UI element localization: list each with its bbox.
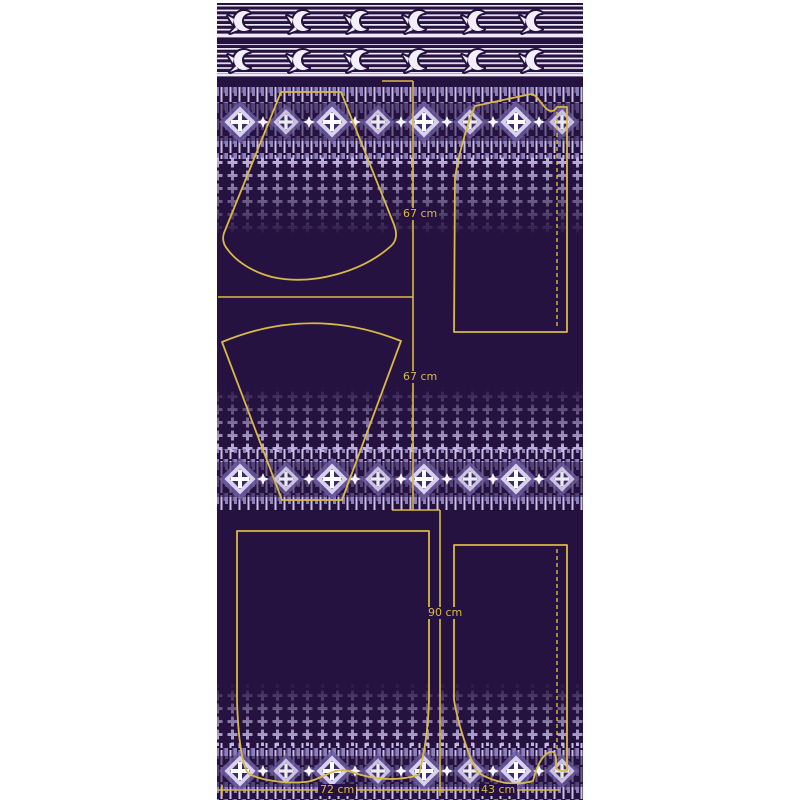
- ornament-band-top: [217, 87, 583, 234]
- plus-texture-fade: [217, 684, 583, 746]
- plus-texture-fade: [217, 156, 583, 234]
- fabric-panel: [217, 3, 583, 800]
- fabric-artwork: [217, 3, 583, 800]
- bird-border-top: [217, 5, 583, 76]
- measurement-label-72cm: 72 cm: [318, 784, 356, 796]
- measurement-label-67cm-bottom: 67 cm: [401, 371, 439, 383]
- ornament-band-middle: [217, 388, 583, 510]
- fabric-pattern-sheet: 67 cm 67 cm 90 cm 72 cm 43 cm: [0, 0, 800, 800]
- measurement-label-90cm: 90 cm: [426, 607, 464, 619]
- measurement-label-43cm: 43 cm: [479, 784, 517, 796]
- measurement-label-67cm-top: 67 cm: [401, 208, 439, 220]
- plus-texture-fade: [217, 388, 583, 452]
